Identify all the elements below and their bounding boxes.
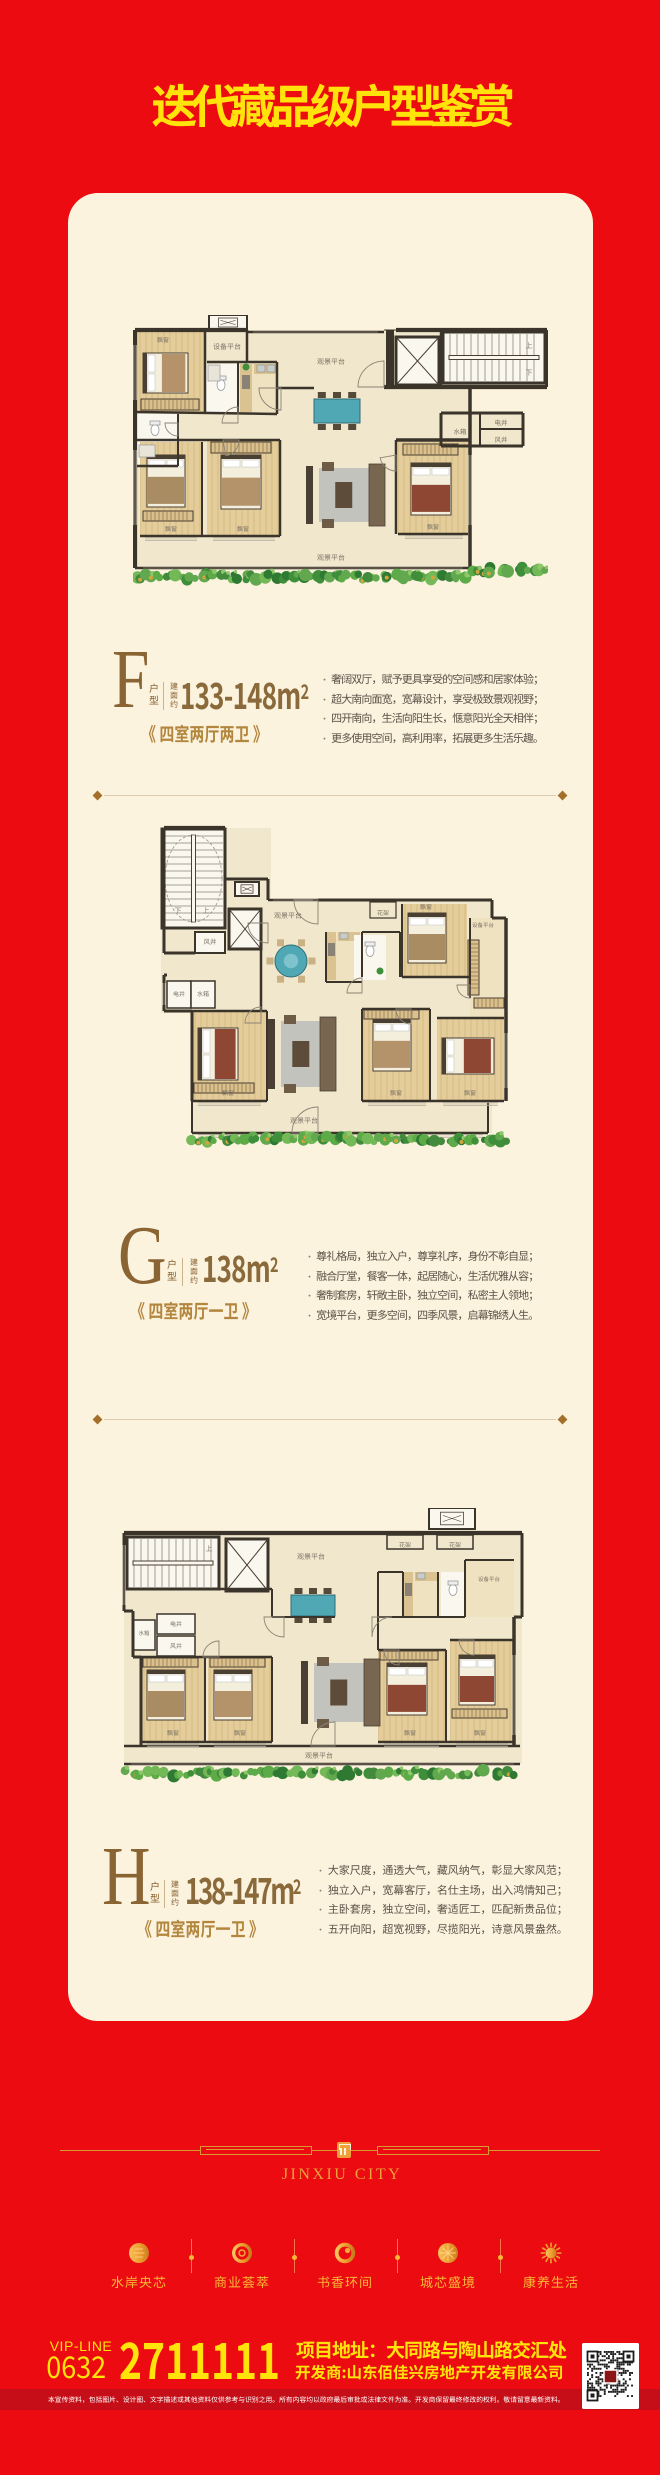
svg-text:飘窗: 飘窗 — [404, 1728, 416, 1737]
svg-text:上: 上 — [203, 906, 210, 916]
svg-text:电井: 电井 — [170, 1619, 182, 1628]
svg-text:上: 上 — [526, 341, 533, 351]
svg-text:观景平台: 观景平台 — [305, 1751, 333, 1761]
svg-text:观景平台: 观景平台 — [274, 911, 302, 921]
svg-text:水箱: 水箱 — [138, 1629, 150, 1637]
svg-text:飘窗: 飘窗 — [157, 335, 169, 344]
svg-text:花架: 花架 — [399, 1540, 411, 1549]
svg-text:飘窗: 飘窗 — [390, 1088, 402, 1097]
svg-text:电井: 电井 — [495, 417, 509, 427]
svg-text:飘窗: 飘窗 — [167, 1728, 179, 1737]
svg-text:电井: 电井 — [173, 989, 185, 998]
svg-text:风井: 风井 — [495, 434, 509, 444]
svg-text:飘窗: 飘窗 — [427, 522, 439, 531]
svg-text:飘窗: 飘窗 — [464, 1088, 476, 1097]
svg-text:观景平台: 观景平台 — [317, 553, 345, 563]
svg-text:花架: 花架 — [377, 908, 389, 917]
svg-text:设备平台: 设备平台 — [478, 1575, 501, 1583]
svg-text:飘窗: 飘窗 — [165, 524, 177, 533]
svg-text:飘窗: 飘窗 — [234, 1728, 246, 1737]
svg-text:观景平台: 观景平台 — [297, 1552, 325, 1562]
svg-text:上: 上 — [206, 1544, 213, 1554]
svg-text:水箱: 水箱 — [197, 989, 209, 998]
svg-text:下: 下 — [175, 906, 182, 916]
svg-text:观景平台: 观景平台 — [317, 357, 345, 367]
svg-text:风井: 风井 — [204, 936, 218, 946]
svg-text:花架: 花架 — [449, 1540, 461, 1549]
svg-text:设备平台: 设备平台 — [472, 921, 495, 929]
svg-text:飘窗: 飘窗 — [474, 1728, 486, 1737]
svg-text:飘窗: 飘窗 — [420, 902, 432, 911]
svg-text:观景平台: 观景平台 — [290, 1116, 318, 1126]
svg-text:飘窗: 飘窗 — [222, 1088, 234, 1097]
svg-text:风井: 风井 — [170, 1641, 182, 1650]
svg-text:飘窗: 飘窗 — [237, 524, 249, 533]
svg-text:水箱: 水箱 — [454, 426, 468, 436]
svg-text:设备平台: 设备平台 — [213, 342, 241, 352]
svg-text:下: 下 — [526, 368, 533, 378]
